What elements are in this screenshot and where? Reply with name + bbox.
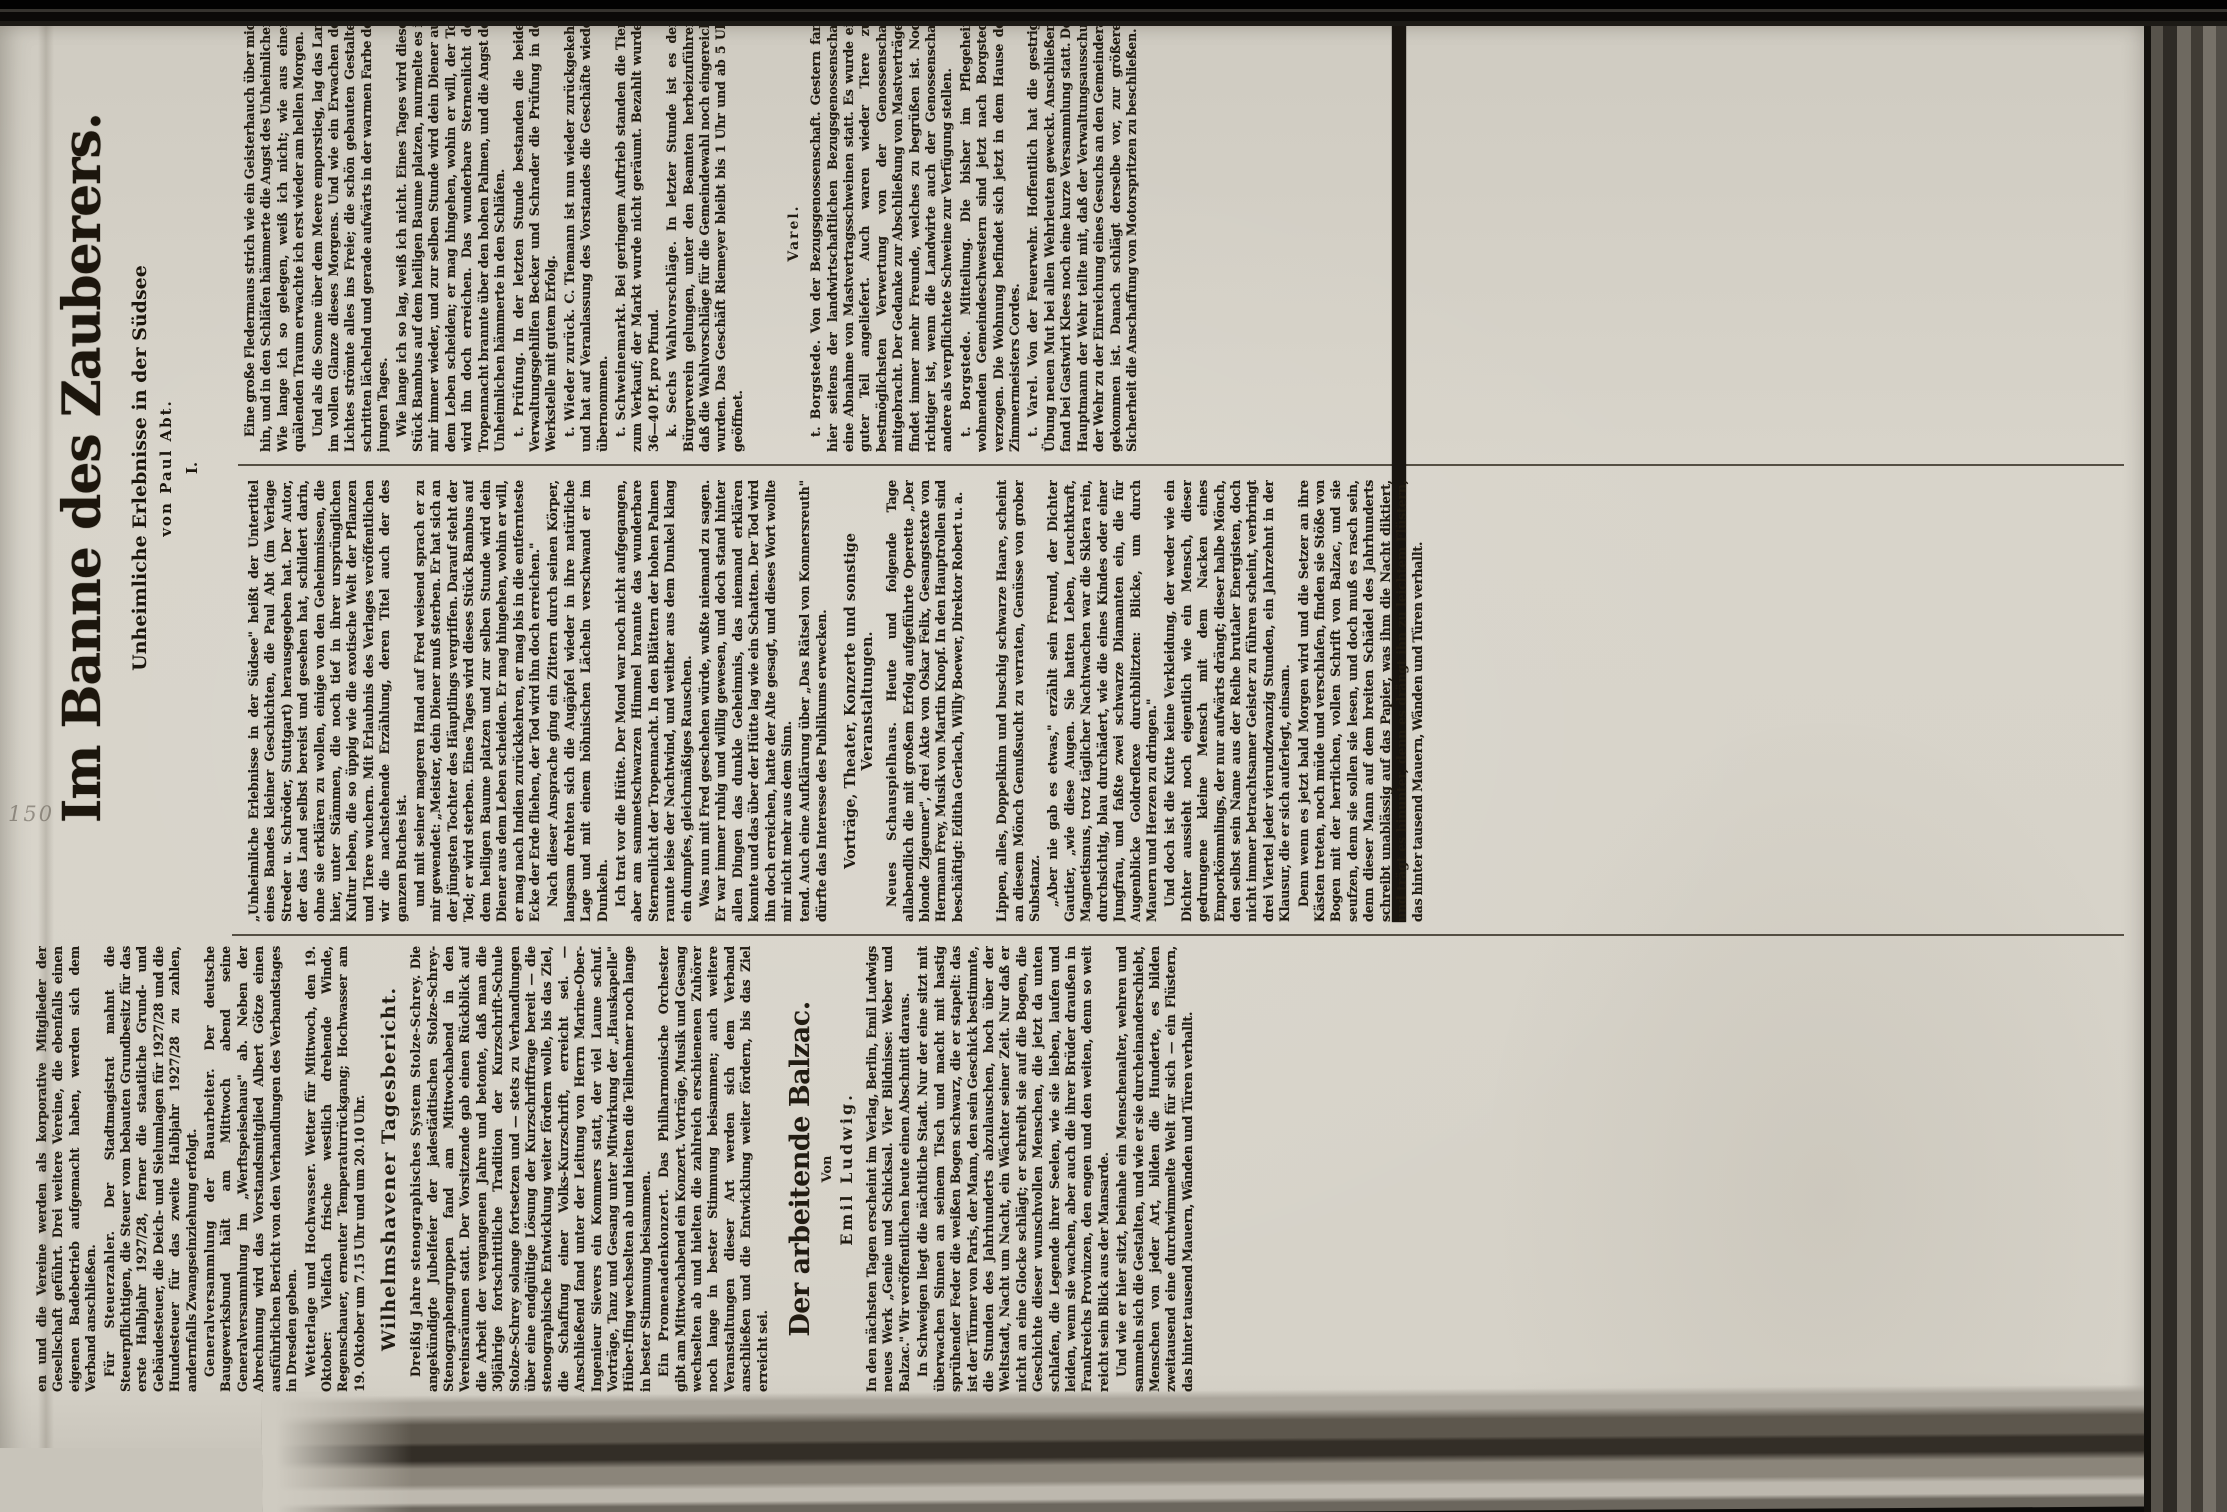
news-item-lead: Ein Promenadenkonzert. [656,1189,671,1377]
news-item-lead: t. Borgstede. [958,331,973,437]
article-byline-von: Von [820,946,835,1392]
book-page-stack-right [2144,0,2227,1512]
section-header-tagesbericht: Wilhelmshavener Tagesbericht. [378,946,400,1392]
news-item-lead: t. Prüfung. [511,352,526,437]
story-intro: „Unheimliche Erlebnisse in der Südsee" h… [246,480,410,922]
column-1: en und die Vereine werden als korporativ… [34,946,2119,1392]
news-item: Generalversammlung der Bauarbeiter. Der … [202,946,300,1392]
news-item: Ein Promenadenkonzert. Das Philharmonisc… [656,946,771,1392]
news-item: Für Steuerzahler. Der Stadtmagistrat mah… [102,946,200,1392]
paper-crease [38,24,54,1454]
story-paragraph: Nach dieser Ansprache ging ein Zittern d… [545,480,611,922]
story-paragraph: Und als die Sonne über dem Meere emporst… [310,22,392,452]
news-item-lead: Dreißig Jahre stenographisches System St… [408,974,423,1377]
article-paragraph: „Aber nie gab es etwas," erzählt sein Fr… [1045,480,1160,922]
story-paragraph: Eine große Fledermaus strich wie ein Gei… [242,22,308,452]
article-author: Emil Ludwig. [837,946,856,1392]
news-item-lead: Neues Schauspielhaus. [884,722,899,907]
news-item: t. Wieder zurück. C. Tiemann ist nun wie… [562,22,611,452]
news-item: t. Prüfung. In der letzten Stunde bestan… [511,22,560,452]
article-paragraph: Und doch ist die Kutte keine Verkleidung… [1162,480,1293,922]
paper-corner [0,1448,290,1512]
story-paragraph: Was nun mit Fred geschehen würde, wußte … [697,480,795,922]
news-item-lead: t. Borgstede. [808,340,823,437]
news-item: Neues Schauspielhaus. Heute und folgende… [884,480,966,922]
section-header-events: Vorträge, Theater, Konzerte und sonstige… [842,480,876,922]
news-item-lead: Wetterlage und Hochwasser. [303,1163,318,1377]
story-paragraph: Wie lange ich so lag, weiß ich nicht. Ei… [394,22,509,452]
news-item-lead: Für Steuerzahler. [102,1231,117,1377]
feuilleton-header: Im Banne des Zauberers. Unheimliche Erle… [24,22,239,922]
divider-gap [968,480,994,922]
newspaper-page: Im Banne des Zauberers. Unheimliche Erle… [0,22,2149,1492]
news-item: tend. Auch eine Aufklärung über „Das Rät… [797,480,830,922]
article-paragraph: Und wie er hier sitzt, beinahe ein Mensc… [1114,946,1196,1392]
news-item: t. Borgstede. Von der Bezugsgenossenscha… [808,22,956,452]
news-item: k. Sechs Wahlvorschläge. In letzter Stun… [664,22,746,452]
column-rule-right [238,464,2124,466]
news-item: t. Schweinemarkt. Bei geringem Auftrieb … [613,22,662,452]
news-item-lead: t. Varel. [1025,375,1040,437]
article-paragraph: In Schweigen liegt die nächtliche Stadt.… [915,946,1112,1392]
news-item: t. Borgstede. Mitteilung. Die bisher im … [958,22,1024,452]
news-item-lead: k. Sechs Wahlvorschläge. [664,241,679,437]
feuilleton-chapter-numeral: I. [183,22,201,922]
news-item-lead: t. Wieder zurück. [562,309,577,438]
district-header-varel: Varel. [786,22,802,452]
story-paragraph: und mit seiner mageren Hand auf Fred wei… [412,480,543,922]
divider-gap [748,22,778,452]
feuilleton-title: Im Banne des Zauberers. [52,22,113,922]
article-title-balzac: Der arbeitende Balzac. [785,946,816,1392]
feuilleton-byline: von Paul Abt. [157,22,175,922]
feuilleton-subtitle: Unheimliche Erlebnisse in der Südsee [129,22,151,922]
scan-black-edge-top [0,0,2227,26]
news-item: Wetterlage und Hochwasser. Wetter für Mi… [303,946,369,1392]
story-paragraph: Ich trat vor die Hütte. Der Mond war noc… [613,480,695,922]
book-page-curl-bottom [262,1380,2227,1512]
news-item: t. Varel. Von der Feuerwehr. Hoffentlich… [1025,22,1140,452]
column-2: „Unheimliche Erlebnisse in der Südsee" h… [246,480,2124,922]
news-item-lead: t. Schweinemarkt. [613,303,628,438]
article-paragraph: Denn wenn es jetzt bald Morgen wird und … [1296,480,1427,922]
column-rule-left [232,934,2124,936]
article-paragraph: In den nächsten Tagen erscheint im Verla… [864,946,913,1392]
article-paragraph: Lippen, alles, Doppelkinn und buschig sc… [994,480,1043,922]
news-item-lead: Generalversammlung der Bauarbeiter. [202,1068,217,1377]
news-item: Dreißig Jahre stenographisches System St… [408,946,654,1392]
scanned-newspaper-screenshot: Im Banne des Zauberers. Unheimliche Erle… [0,0,2227,1512]
column-3: Eine große Fledermaus strich wie ein Gei… [242,22,2124,452]
